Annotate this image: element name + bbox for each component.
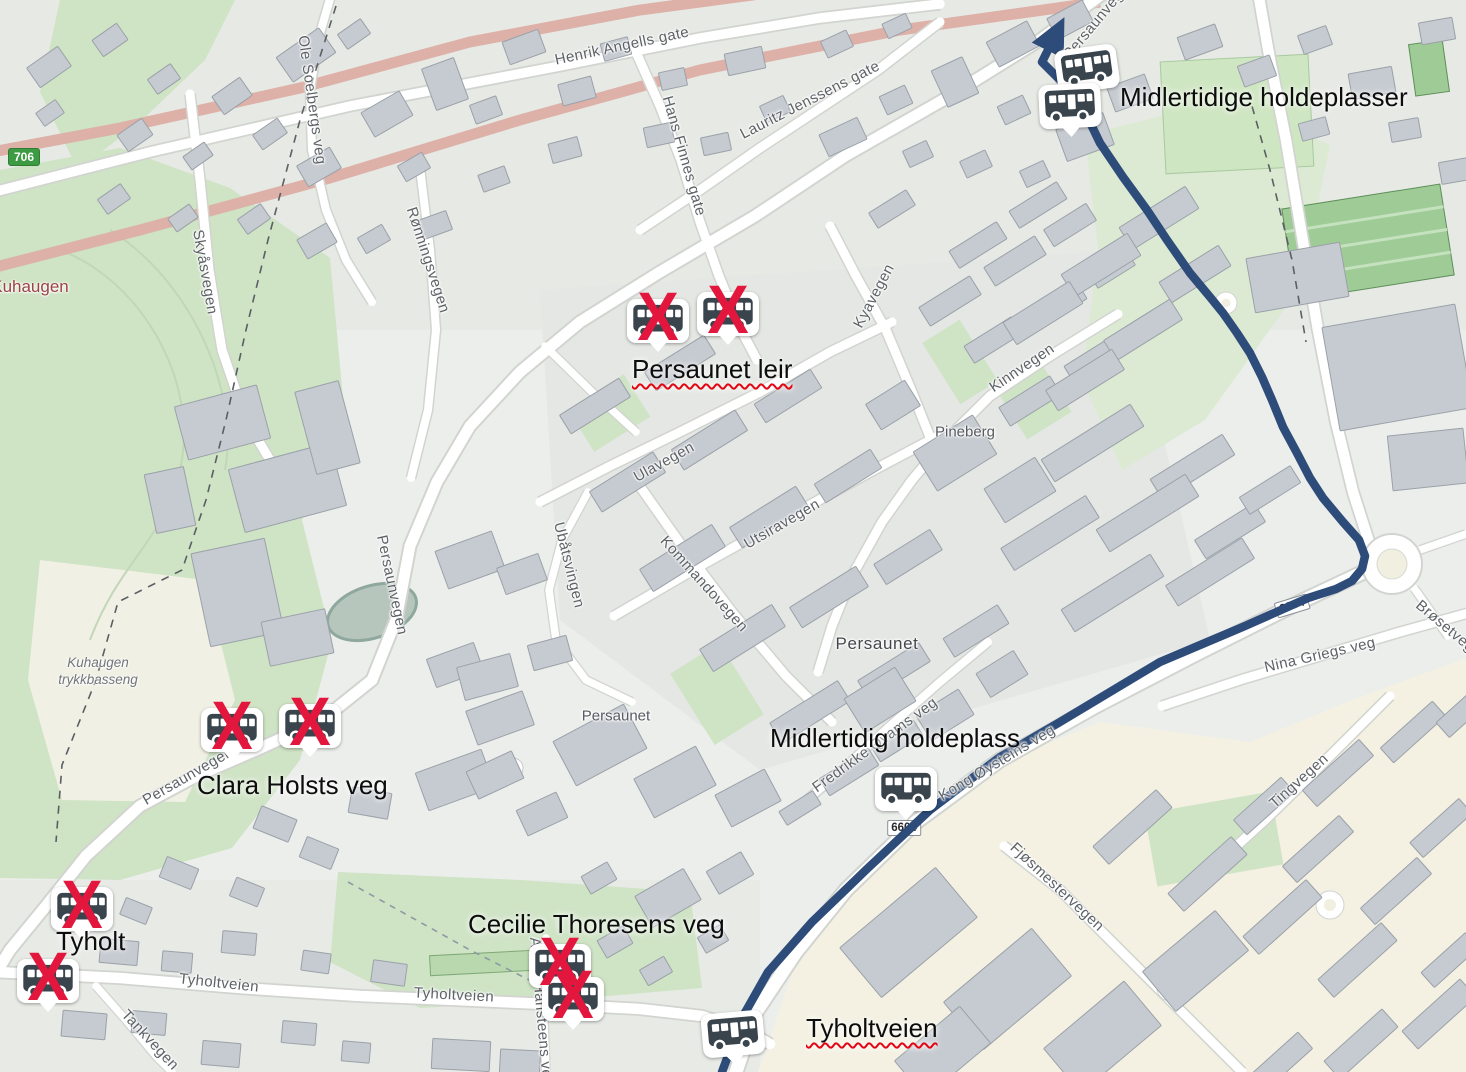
cancelled-cross-icon: X (637, 284, 678, 352)
annotations: Midlertidige holdeplasserPersaunet leirC… (0, 0, 1466, 1072)
annotation-label: Midlertidig holdeplass (770, 723, 1020, 754)
annotation-label: Tyholtveien (806, 1013, 938, 1044)
cancelled-cross-icon: X (61, 872, 102, 940)
cancelled-cross-icon: X (552, 962, 593, 1030)
annotation-label: Cecilie Thoresens veg (468, 909, 725, 940)
cancelled-cross-icon: X (289, 689, 330, 757)
cancelled-cross-icon: X (211, 693, 252, 761)
annotation-label: Persaunet leir (632, 354, 792, 385)
cancelled-cross-icon: X (27, 944, 68, 1012)
map-canvas: 70666046604 Henrik Angells gateHans Finn… (0, 0, 1466, 1072)
cancelled-cross-icon: X (707, 277, 748, 345)
annotation-label: Clara Holsts veg (197, 770, 388, 801)
annotation-label: Midlertidige holdeplasser (1120, 82, 1408, 113)
